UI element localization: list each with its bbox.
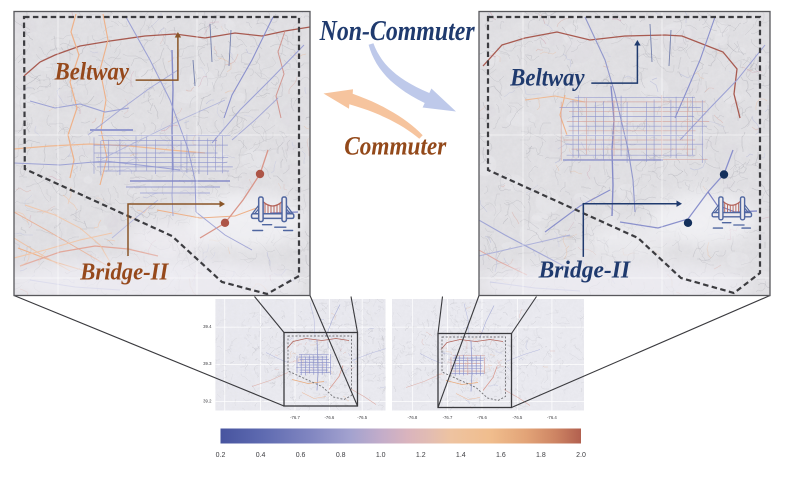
- svg-text:-76.6: -76.6: [477, 415, 487, 420]
- svg-text:-76.6: -76.6: [325, 415, 335, 420]
- svg-text:Beltway: Beltway: [54, 59, 130, 86]
- svg-text:39.2: 39.2: [203, 398, 212, 403]
- svg-text:Beltway: Beltway: [509, 65, 585, 92]
- svg-text:2.0: 2.0: [576, 452, 586, 459]
- svg-text:1.8: 1.8: [536, 452, 546, 459]
- svg-text:0.6: 0.6: [296, 452, 306, 459]
- svg-text:-76.5: -76.5: [513, 415, 523, 420]
- svg-text:-76.8: -76.8: [408, 415, 418, 420]
- svg-text:39.3: 39.3: [203, 361, 212, 366]
- svg-text:0.4: 0.4: [256, 452, 266, 459]
- svg-text:Bridge-II: Bridge-II: [538, 257, 632, 283]
- svg-text:0.2: 0.2: [216, 452, 226, 459]
- svg-text:1.6: 1.6: [496, 452, 506, 459]
- svg-text:-76.7: -76.7: [443, 415, 453, 420]
- svg-text:1.4: 1.4: [456, 452, 466, 459]
- svg-text:-76.4: -76.4: [547, 415, 557, 420]
- svg-text:Commuter: Commuter: [344, 132, 447, 161]
- svg-text:39.4: 39.4: [203, 324, 212, 329]
- svg-text:1.2: 1.2: [416, 452, 426, 459]
- svg-text:-76.7: -76.7: [290, 415, 300, 420]
- svg-text:Bridge-II: Bridge-II: [79, 260, 170, 286]
- svg-text:Non-Commuter: Non-Commuter: [319, 15, 475, 47]
- svg-text:1.0: 1.0: [376, 452, 386, 459]
- svg-text:-76.5: -76.5: [357, 415, 367, 420]
- svg-text:0.8: 0.8: [336, 452, 346, 459]
